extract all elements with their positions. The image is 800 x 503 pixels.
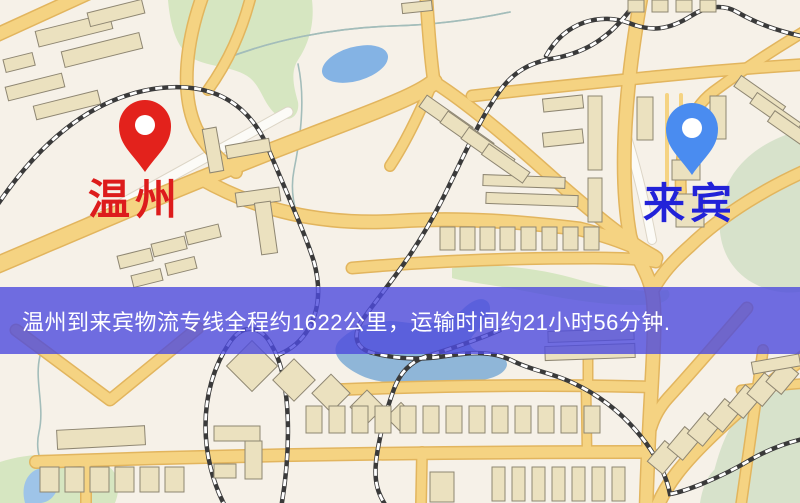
origin-label: 温州 (88, 180, 182, 222)
destination-label: 来宾 (643, 184, 737, 226)
logistics-route-map: 温州 来宾 温州到来宾物流专线全程约1622公里，运输时间约21小时56分钟. (0, 0, 800, 503)
map-graphic (0, 0, 800, 503)
route-info-banner: 温州到来宾物流专线全程约1622公里，运输时间约21小时56分钟. (0, 287, 800, 354)
route-info-text: 温州到来宾物流专线全程约1622公里，运输时间约21小时56分钟. (0, 305, 671, 337)
